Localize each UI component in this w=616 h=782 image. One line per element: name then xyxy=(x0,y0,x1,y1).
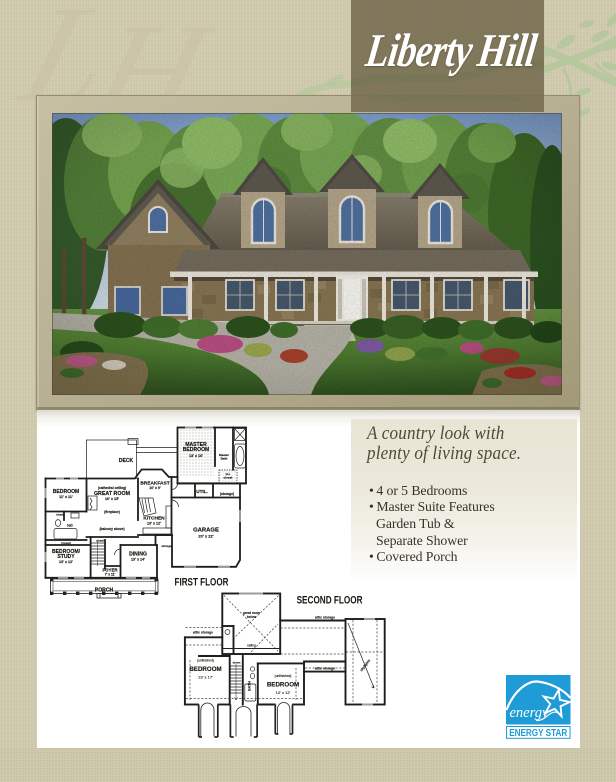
svg-text:16' x 15': 16' x 15' xyxy=(105,497,119,501)
svg-text:13' x 12': 13' x 12' xyxy=(147,522,161,526)
svg-text:Bath: Bath xyxy=(221,457,228,461)
svg-text:railing: railing xyxy=(247,644,256,648)
svg-text:13' x 14': 13' x 14' xyxy=(131,558,145,562)
svg-text:skylights: skylights xyxy=(359,658,371,672)
svg-text:13' x 17': 13' x 17' xyxy=(198,675,213,680)
svg-text:DECK: DECK xyxy=(119,458,134,464)
svg-text:13' x 12': 13' x 12' xyxy=(59,560,73,564)
svg-text:10' x 9': 10' x 9' xyxy=(149,486,161,490)
svg-text:attic storage: attic storage xyxy=(193,631,213,635)
svg-text:BEDROOM: BEDROOM xyxy=(267,682,299,689)
svg-text:bath: bath xyxy=(67,524,73,528)
svg-text:20' x 22': 20' x 22' xyxy=(198,534,213,539)
svg-text:(unfinished): (unfinished) xyxy=(275,674,292,678)
svg-text:below: below xyxy=(247,615,257,619)
svg-text:ENERGY STAR: ENERGY STAR xyxy=(509,728,568,739)
svg-text:13' x 16': 13' x 16' xyxy=(189,454,203,458)
svg-text:(fireplace): (fireplace) xyxy=(104,510,120,514)
svg-text:closet: closet xyxy=(56,513,64,517)
svg-text:7' x 11': 7' x 11' xyxy=(105,573,116,577)
svg-text:down: down xyxy=(233,661,241,665)
svg-text:PORCH: PORCH xyxy=(95,588,114,594)
svg-text:BATH: BATH xyxy=(248,681,252,691)
svg-text:BEDROOM: BEDROOM xyxy=(183,447,210,453)
svg-text:storage: storage xyxy=(161,544,172,548)
svg-text:(unfinished): (unfinished) xyxy=(197,659,214,663)
svg-text:UTIL.: UTIL. xyxy=(196,489,207,494)
svg-text:12' x 12': 12' x 12' xyxy=(276,690,291,695)
svg-text:attic storage: attic storage xyxy=(315,667,335,671)
svg-text:SECOND FLOOR: SECOND FLOOR xyxy=(297,595,363,607)
svg-text:(cathedral ceiling): (cathedral ceiling) xyxy=(98,486,126,490)
svg-text:FIRST FLOOR: FIRST FLOOR xyxy=(175,577,229,589)
svg-text:closet: closet xyxy=(224,476,233,480)
svg-text:BEDROOM: BEDROOM xyxy=(189,666,221,673)
svg-text:closet: closet xyxy=(96,539,104,543)
svg-text:(closet): (closet) xyxy=(61,541,71,545)
svg-text:(storage): (storage) xyxy=(220,492,234,496)
svg-text:attic storage: attic storage xyxy=(315,616,335,620)
svg-text:11' x 11': 11' x 11' xyxy=(59,495,73,499)
svg-text:(balcony above): (balcony above) xyxy=(99,527,124,531)
